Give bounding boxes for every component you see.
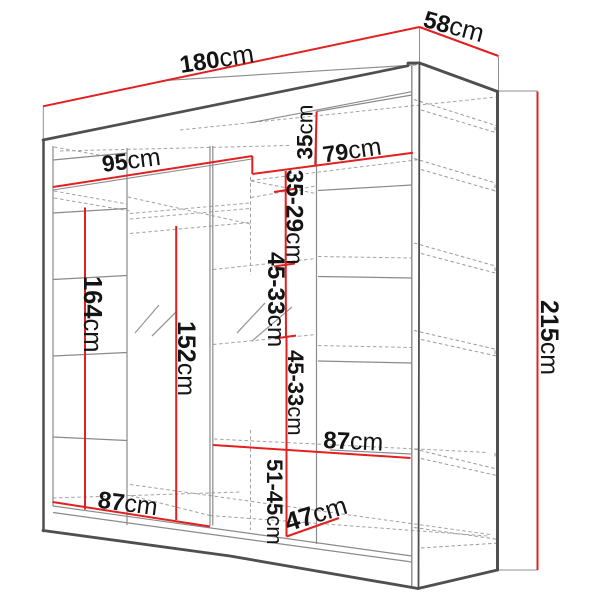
svg-text:35-29cm: 35-29cm — [281, 170, 308, 265]
svg-text:35cm: 35cm — [293, 104, 318, 159]
svg-text:45-33cm: 45-33cm — [262, 252, 289, 347]
svg-text:87cm: 87cm — [323, 426, 384, 457]
svg-text:164cm: 164cm — [78, 276, 106, 353]
svg-text:152cm: 152cm — [172, 321, 200, 396]
svg-text:45-33cm: 45-33cm — [283, 350, 308, 436]
svg-text:51-45cm: 51-45cm — [262, 459, 287, 545]
svg-text:215cm: 215cm — [535, 300, 563, 375]
